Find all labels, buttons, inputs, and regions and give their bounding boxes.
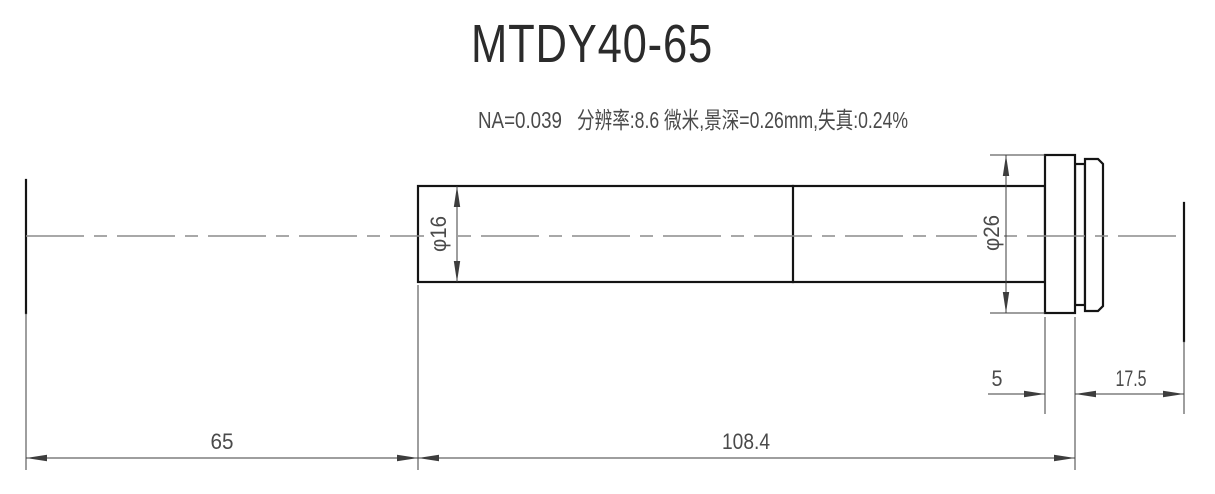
neck-outline (1075, 164, 1085, 305)
arrowhead-right-icon (1054, 455, 1075, 461)
arrowhead-right-icon (1024, 391, 1045, 397)
dimension-object-distance: 65 (26, 285, 418, 470)
arrowhead-up-icon (1003, 155, 1009, 176)
dimension-image-distance: 17.5 (1075, 341, 1184, 414)
dimension-flange-width: 5 (988, 317, 1075, 470)
arrowhead-right-icon (397, 455, 418, 461)
arrowhead-down-icon (1003, 292, 1009, 313)
body-length-label: 108.4 (722, 429, 770, 454)
lens-tube-outline (418, 186, 1045, 282)
retaining-ring-outline (1085, 159, 1103, 311)
flange-width-label: 5 (992, 366, 1003, 391)
na-spec-label: NA=0.039 (478, 107, 562, 133)
page-title: MTDY40-65 (471, 14, 713, 74)
arrowhead-right-icon (1163, 391, 1184, 397)
drawing-sheet: MTDY40-65 NA=0.039 分辨率:8.6 微米,景深=0.26mm,… (0, 0, 1215, 494)
object-distance-label: 65 (211, 429, 234, 454)
arrowhead-left-icon (1075, 391, 1096, 397)
arrowhead-left-icon (418, 455, 439, 461)
tube-diameter-label: φ16 (426, 216, 451, 252)
flange-outline (1045, 155, 1075, 313)
arrowhead-left-icon (26, 455, 47, 461)
dimension-body-length: 108.4 (418, 429, 1075, 461)
image-distance-label: 17.5 (1116, 366, 1147, 391)
flange-diameter-label: φ26 (979, 215, 1004, 251)
optical-specs-label: 分辨率:8.6 微米,景深=0.26mm,失真:0.24% (577, 107, 908, 133)
technical-drawing-canvas: MTDY40-65 NA=0.039 分辨率:8.6 微米,景深=0.26mm,… (0, 0, 1215, 494)
